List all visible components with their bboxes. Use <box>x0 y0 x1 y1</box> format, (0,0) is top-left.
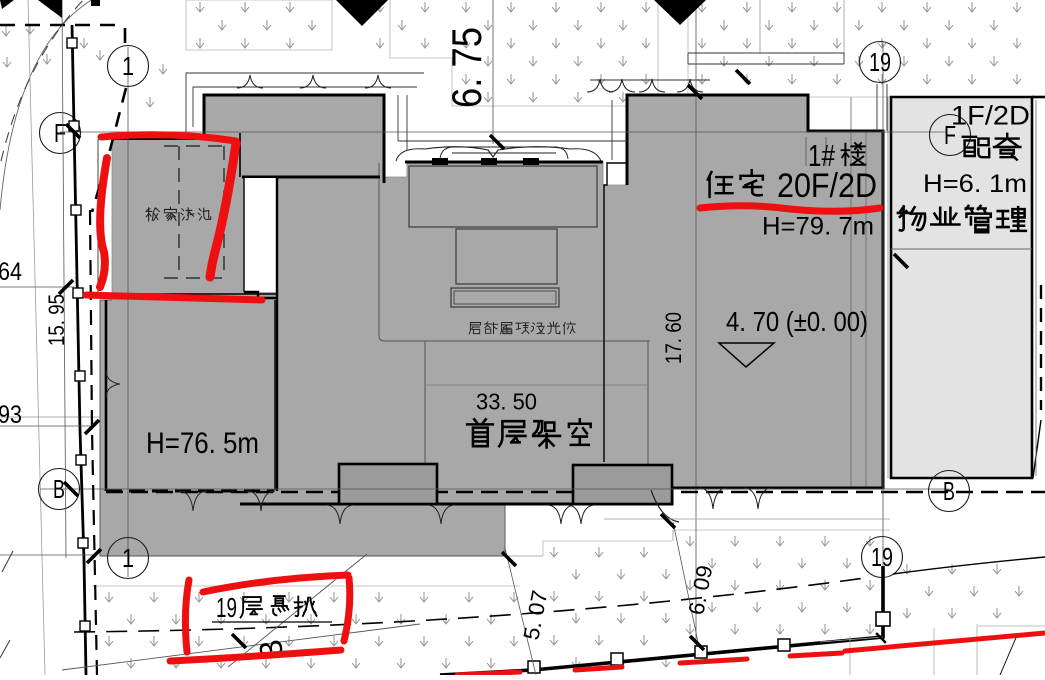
svg-text:6. 75: 6. 75 <box>443 27 490 108</box>
svg-text:F: F <box>54 118 66 148</box>
svg-text:H=79. 7m: H=79. 7m <box>762 213 874 241</box>
svg-text:19: 19 <box>216 592 237 623</box>
svg-text:H=76. 5m: H=76. 5m <box>146 427 259 460</box>
svg-text:1: 1 <box>122 51 134 81</box>
svg-text:93: 93 <box>0 401 22 429</box>
svg-text:1F/2D: 1F/2D <box>951 101 1030 131</box>
svg-text:15. 95: 15. 95 <box>44 294 69 346</box>
svg-text:1: 1 <box>122 543 134 573</box>
svg-text:19: 19 <box>869 47 891 77</box>
svg-text:33. 50: 33. 50 <box>476 389 537 415</box>
svg-text:64: 64 <box>0 258 22 286</box>
svg-text:B: B <box>53 474 65 504</box>
svg-text:4. 70 (±0. 00): 4. 70 (±0. 00) <box>726 306 868 337</box>
svg-text:17. 60: 17. 60 <box>661 312 686 364</box>
svg-text:B: B <box>943 476 955 506</box>
svg-text:1#: 1# <box>808 138 836 173</box>
svg-text:H=6. 1m: H=6. 1m <box>923 170 1027 198</box>
